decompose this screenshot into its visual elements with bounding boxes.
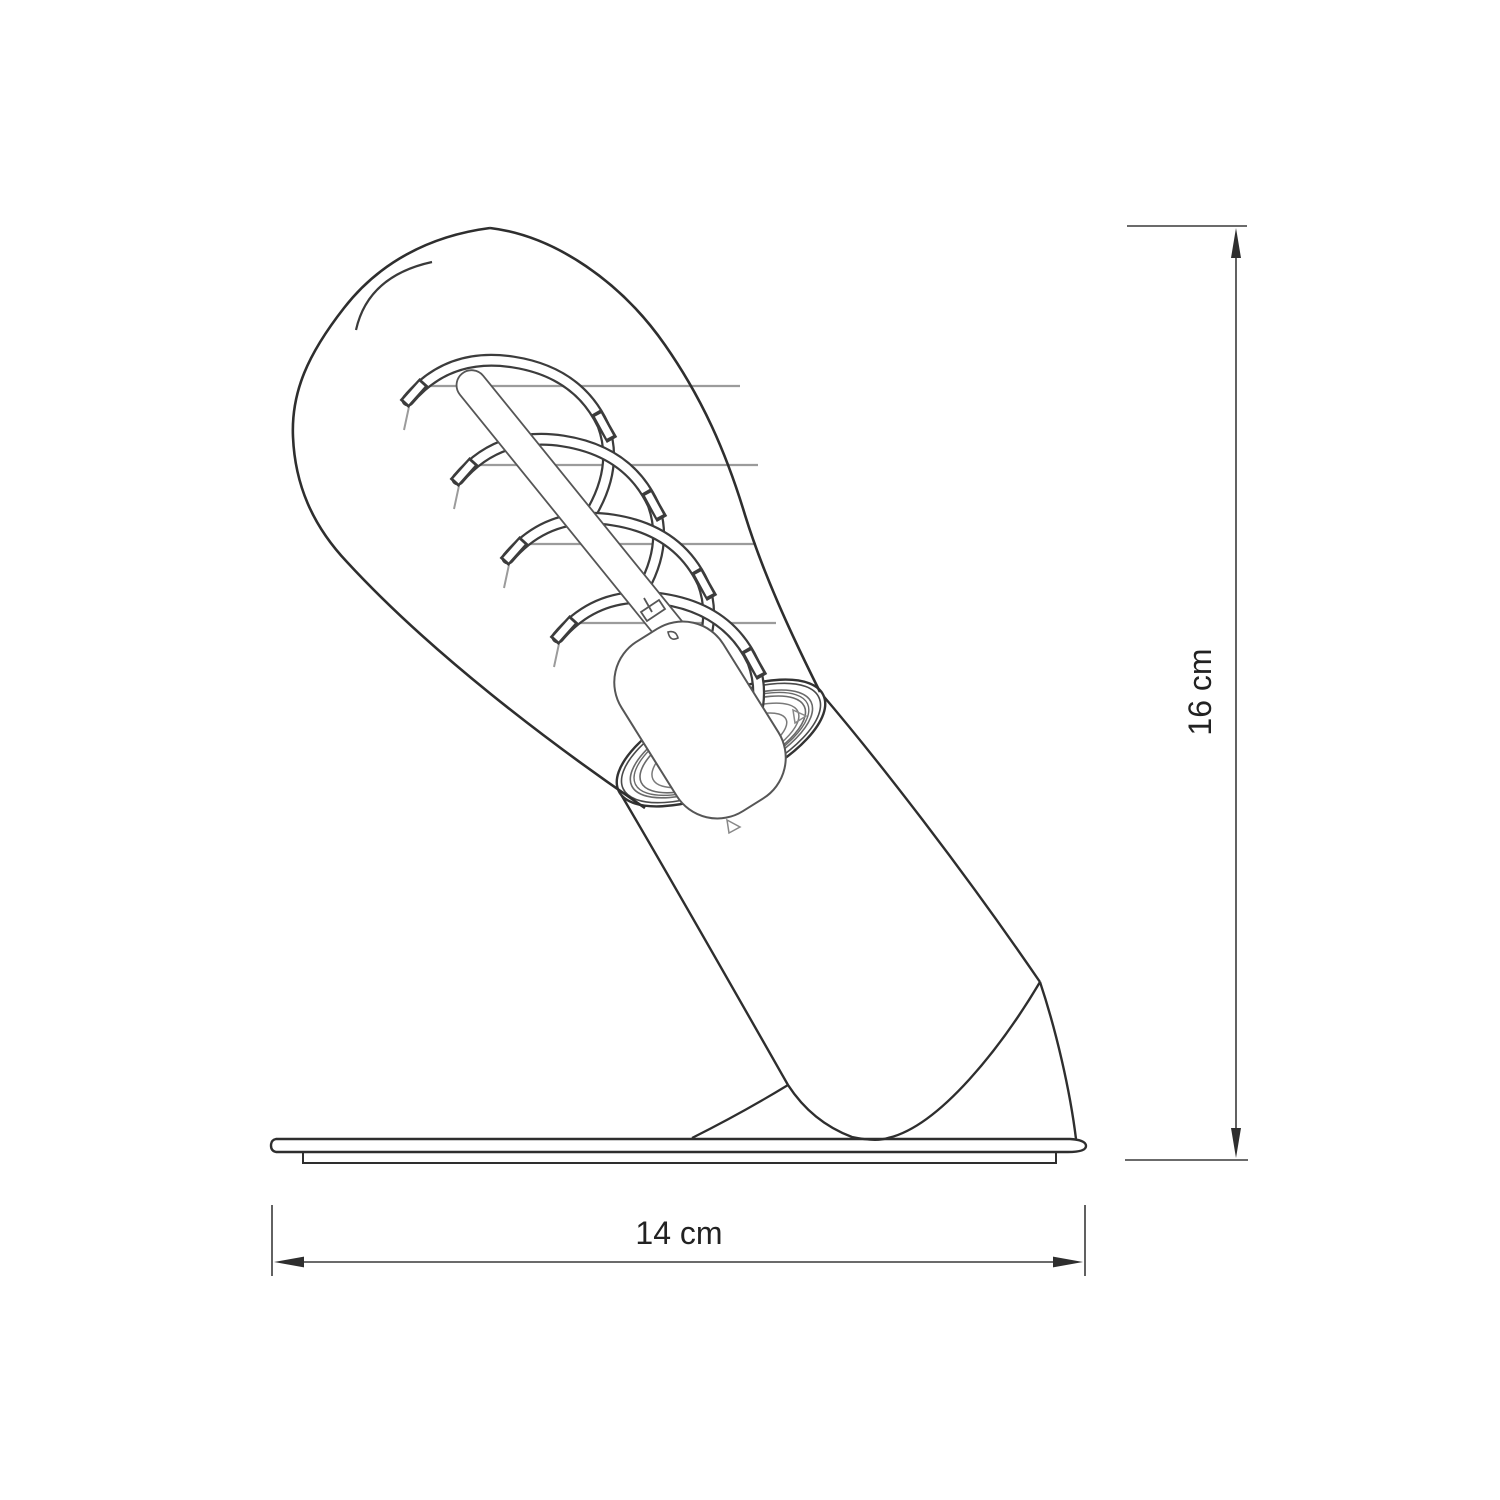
base-plate xyxy=(271,1139,1086,1163)
wedge-support xyxy=(692,982,1076,1139)
width-arrow-right xyxy=(1053,1257,1083,1268)
cylinder-right-edge xyxy=(820,692,1040,982)
cylinder-left-bottom-edge xyxy=(619,791,1040,1140)
base-top-plate xyxy=(271,1139,1086,1152)
wedge-right-edge xyxy=(1040,982,1076,1139)
bulb-highlight-arc xyxy=(356,262,432,330)
width-arrow-left xyxy=(274,1257,304,1268)
lamp-dimension-diagram: 16 cm 14 cm xyxy=(0,0,1500,1500)
width-dimension: 14 cm xyxy=(272,1205,1085,1276)
height-dimension: 16 cm xyxy=(1125,226,1248,1160)
rim-clip-notch-lower xyxy=(727,820,740,833)
width-dimension-label: 14 cm xyxy=(635,1215,722,1251)
height-arrow-down xyxy=(1231,1128,1241,1158)
diagram-canvas: 16 cm 14 cm xyxy=(0,0,1500,1500)
wedge-left-edge xyxy=(692,1085,788,1138)
height-dimension-label: 16 cm xyxy=(1182,648,1218,735)
height-arrow-up xyxy=(1231,228,1241,258)
base-lower-plate xyxy=(303,1152,1056,1163)
